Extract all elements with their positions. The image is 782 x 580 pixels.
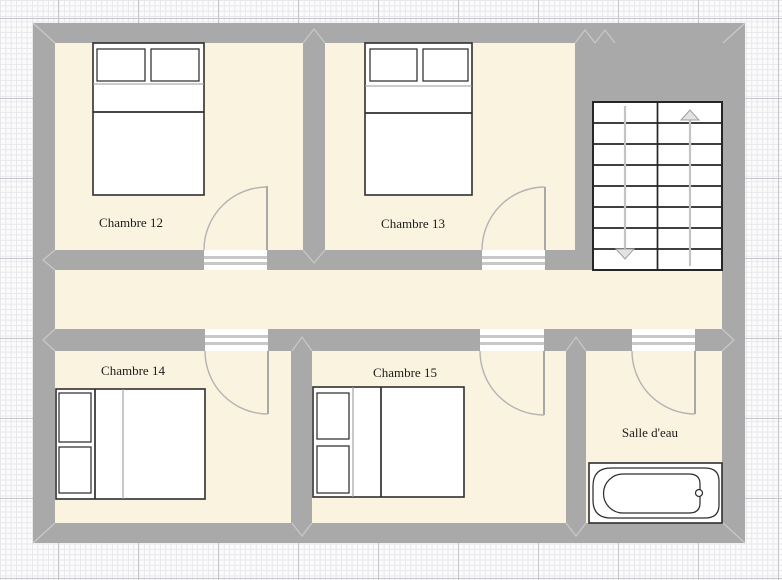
door-threshold-stripe <box>205 342 268 345</box>
pillow <box>59 447 91 493</box>
door-threshold-stripe <box>632 335 695 338</box>
room-label-chambre-12: Chambre 12 <box>99 215 163 230</box>
pillow <box>59 393 91 442</box>
door-opening <box>204 250 267 270</box>
pillow <box>317 393 349 439</box>
pillow <box>423 49 468 81</box>
pillow <box>97 49 145 81</box>
door-opening <box>205 329 268 351</box>
door-threshold-stripe <box>480 342 544 345</box>
door-threshold-stripe <box>205 335 268 338</box>
room-label-chambre-14: Chambre 14 <box>101 363 165 378</box>
door-threshold-stripe <box>204 256 267 259</box>
floor-plan-svg: Chambre 12 Chambre 13 Chambre 14 Chambre… <box>0 0 782 580</box>
room-label-salle-deau: Salle d'eau <box>622 425 679 440</box>
pillow <box>317 446 349 493</box>
bed-chambre-13[interactable] <box>365 43 472 195</box>
corridor-floor[interactable] <box>55 270 722 329</box>
door-threshold-stripe <box>482 262 545 265</box>
room-label-chambre-13: Chambre 13 <box>381 216 445 231</box>
door-opening <box>482 250 545 270</box>
bed-chambre-15[interactable] <box>313 387 464 497</box>
door-threshold-stripe <box>632 342 695 345</box>
bed-chambre-12[interactable] <box>93 43 204 195</box>
door-opening <box>632 329 695 351</box>
door-threshold-stripe <box>480 335 544 338</box>
door-opening <box>480 329 544 351</box>
bathtub[interactable] <box>589 463 722 523</box>
door-threshold-stripe <box>482 256 545 259</box>
bathtub-drain <box>696 490 703 497</box>
room-label-chambre-15: Chambre 15 <box>373 365 437 380</box>
pillow <box>370 49 417 81</box>
stairs[interactable] <box>593 102 722 270</box>
pillow <box>151 49 199 81</box>
grid-canvas[interactable]: Chambre 12 Chambre 13 Chambre 14 Chambre… <box>0 0 782 580</box>
door-threshold-stripe <box>204 262 267 265</box>
bed-chambre-14[interactable] <box>56 389 205 499</box>
